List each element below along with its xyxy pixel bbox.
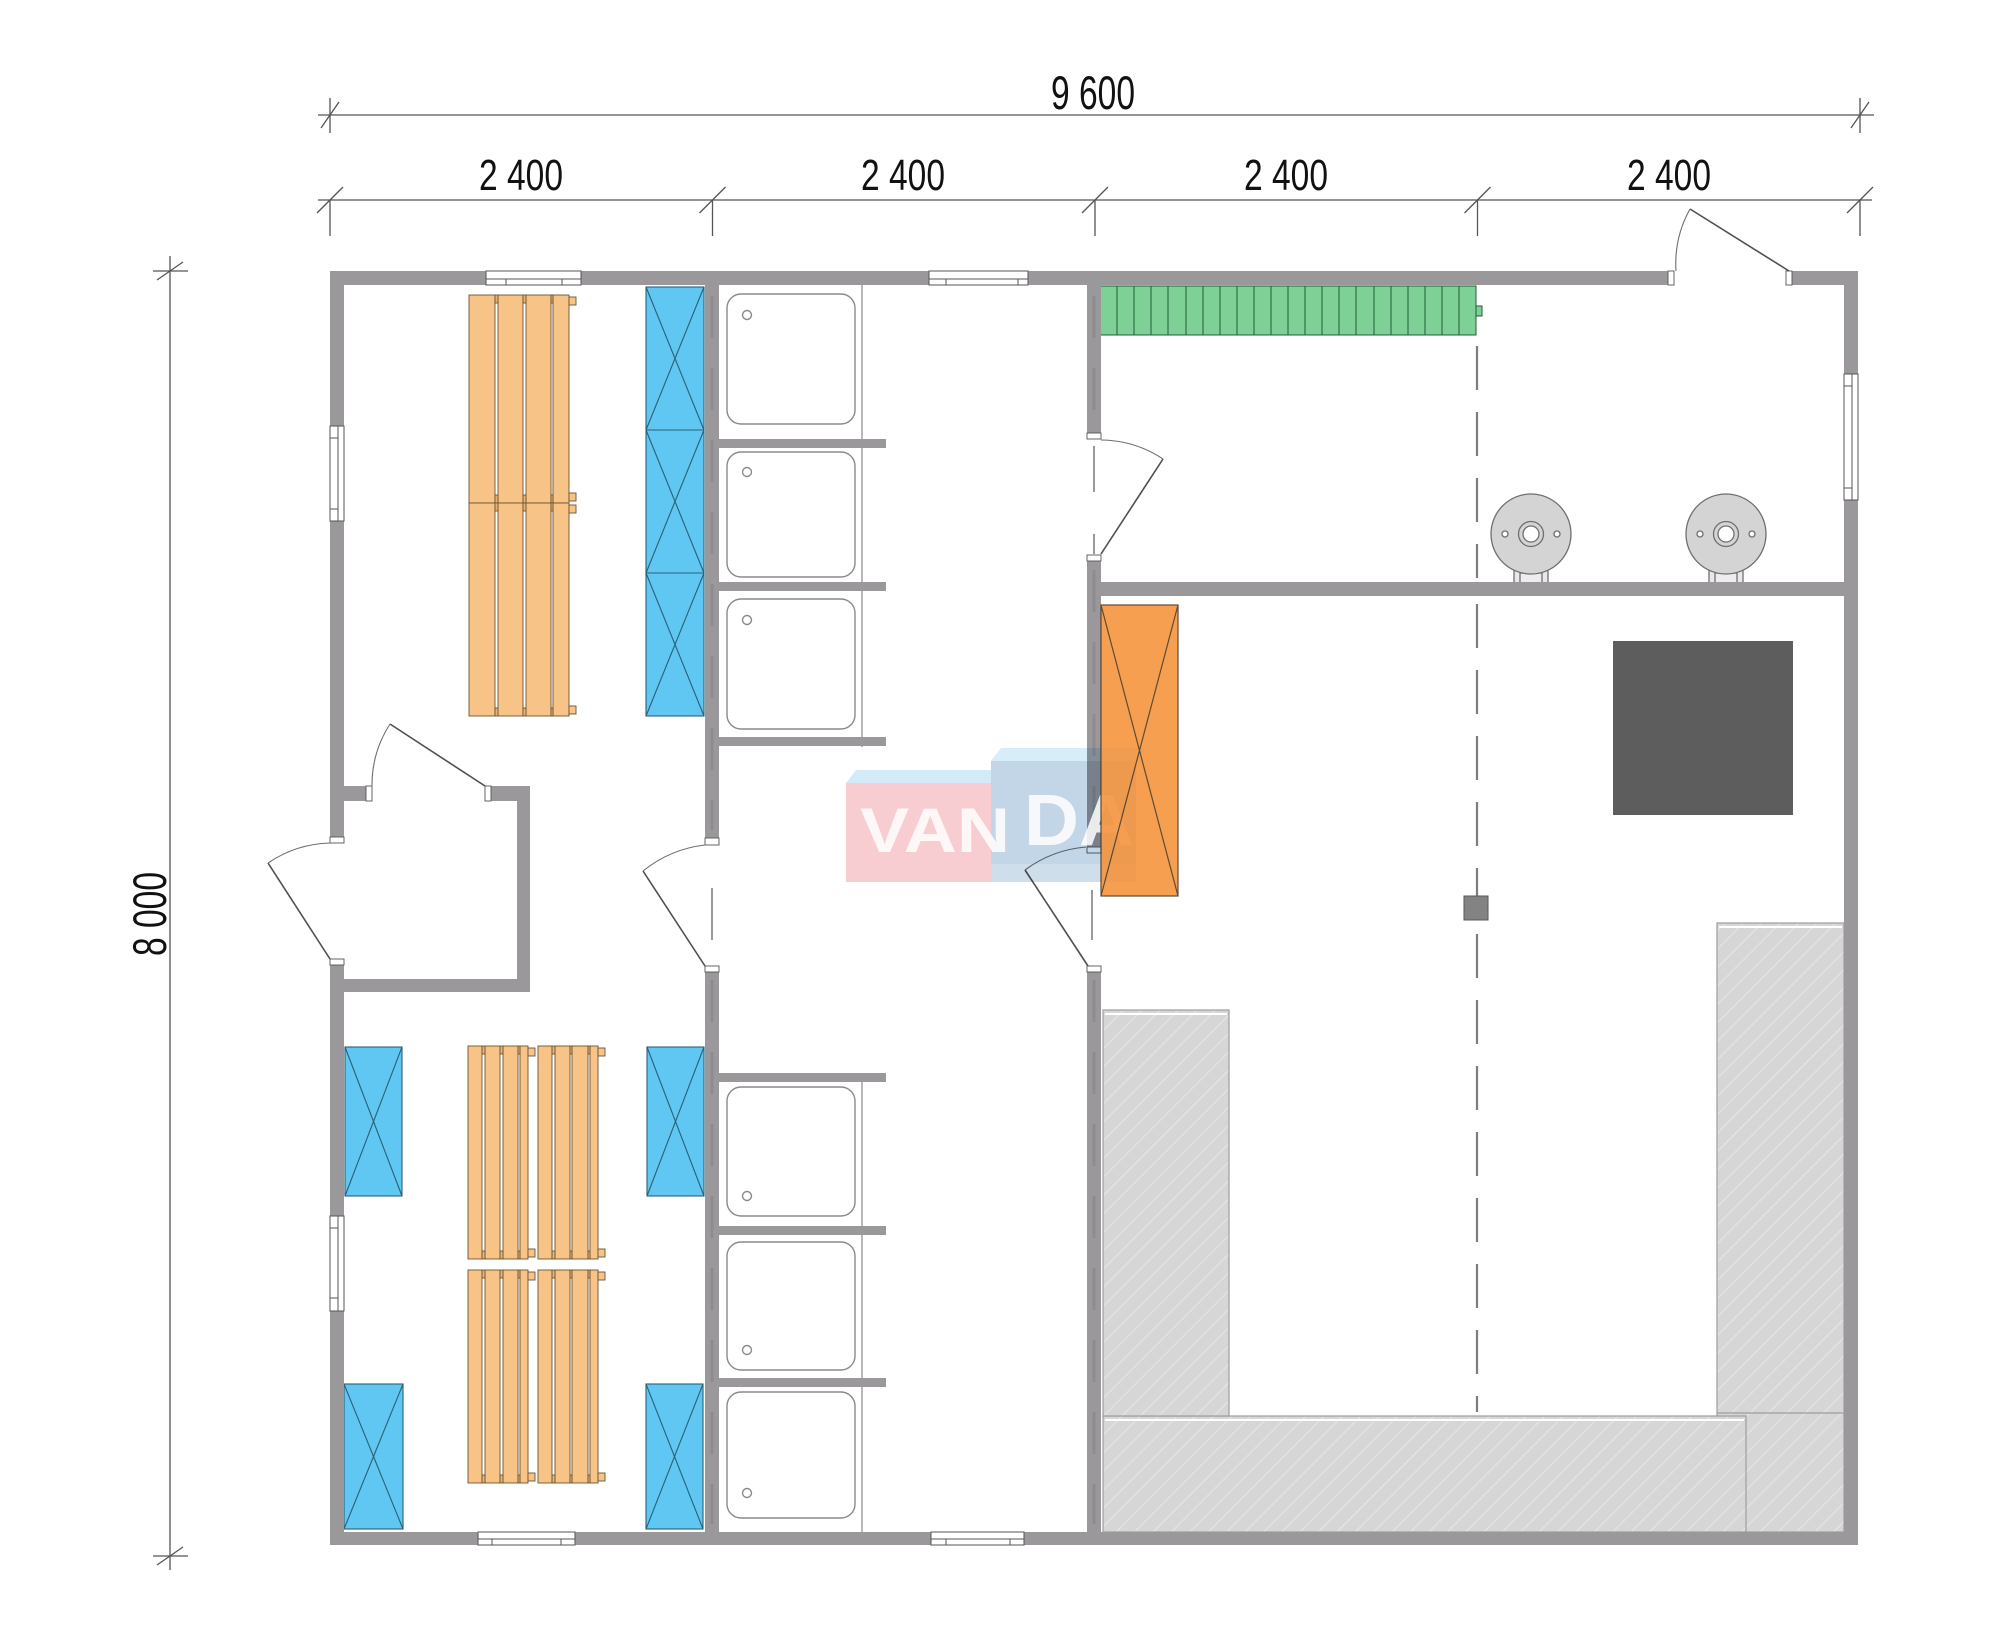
svg-text:2 400: 2 400 [1627, 151, 1711, 200]
svg-text:VAN: VAN [860, 796, 1010, 866]
svg-text:2 400: 2 400 [861, 151, 945, 200]
svg-text:2 400: 2 400 [1244, 151, 1328, 200]
svg-text:8 000: 8 000 [123, 872, 176, 956]
svg-text:2 400: 2 400 [479, 151, 563, 200]
svg-text:9 600: 9 600 [1051, 66, 1135, 119]
